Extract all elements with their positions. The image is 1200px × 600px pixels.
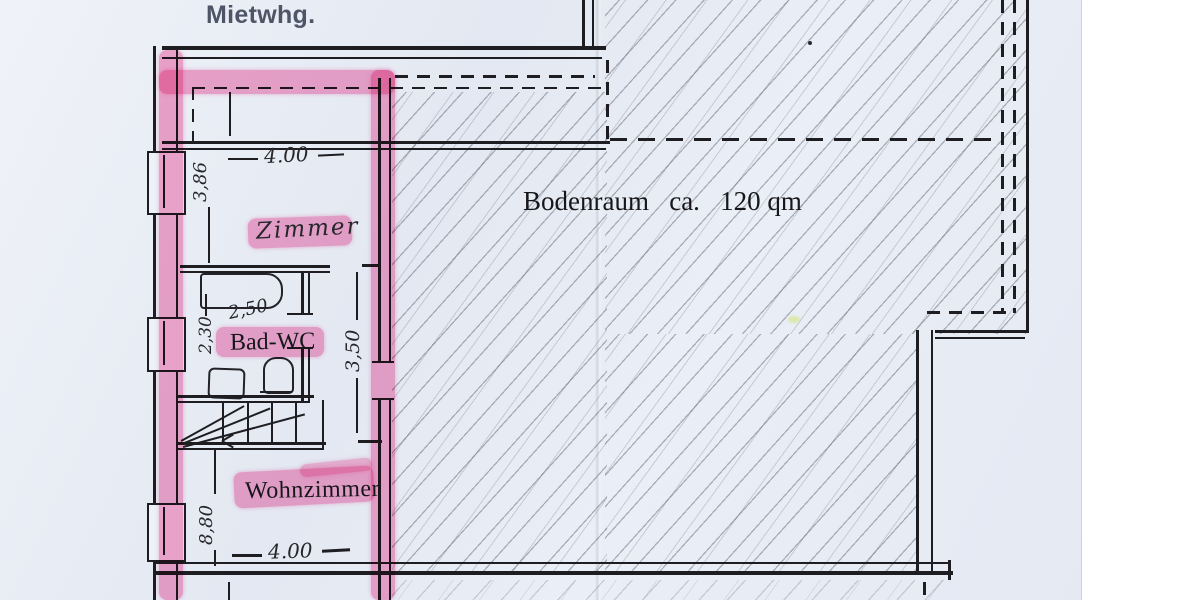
highlight-top-wall [159, 70, 395, 94]
dimension-line [356, 378, 358, 433]
dashed-line [923, 582, 926, 600]
dashed-line [1001, 0, 1004, 313]
stair-edge [178, 448, 324, 450]
door-jamb [287, 313, 313, 315]
wall [301, 273, 304, 315]
wall-tick [229, 92, 231, 136]
wall [592, 0, 594, 48]
dimension-line [214, 550, 216, 566]
dimension-tick [228, 158, 258, 160]
wall [178, 395, 314, 398]
dimension-line [208, 207, 210, 263]
wall [180, 265, 330, 268]
room-label-badwc: Bad-WC [230, 328, 316, 356]
wall [1026, 0, 1029, 333]
dimension-line [214, 448, 216, 494]
dimension-lower-depth: 8,80 [196, 505, 217, 545]
dimension-line [205, 294, 207, 316]
stair-edge [322, 400, 324, 450]
wall [162, 57, 602, 59]
dashed-line [395, 75, 595, 78]
attic-area-label: Bodenraum ca. 120 qm [523, 186, 802, 217]
dashed-line [192, 87, 194, 141]
dashed-line [606, 60, 609, 142]
wall [178, 401, 310, 403]
wall [582, 0, 585, 48]
highlight-left-wall [159, 50, 183, 600]
highlight-right-wall [371, 70, 395, 600]
wall [948, 560, 951, 580]
wall [155, 571, 953, 575]
wall-tick [228, 582, 230, 600]
ink-speck [808, 41, 812, 45]
dashed-line [927, 311, 1007, 314]
wall [162, 46, 606, 50]
apartment-annotation: Mietwhg. [206, 1, 315, 30]
wall [916, 330, 919, 572]
wall [308, 273, 310, 315]
hatch-area [392, 92, 607, 572]
dimension-bad-depth: 2,30 [196, 316, 216, 354]
hatch-area [392, 580, 950, 600]
stair-tread [247, 403, 249, 443]
dimension-line [356, 272, 358, 320]
scanned-floorplan: Mietwhg. Bodenraum ca. 120 qm Zimmer Bad… [0, 0, 1200, 600]
dimension-zimmer-width: 4.00 [263, 142, 309, 168]
toilet [263, 357, 294, 394]
dashed-line [1013, 0, 1016, 313]
dimension-wohnzimmer-width: 4.00 [268, 538, 313, 564]
hatch-area [605, 334, 918, 572]
wall [935, 337, 1025, 339]
room-label-zimmer: Zimmer [255, 213, 360, 244]
wall [935, 330, 1028, 333]
room-label-wohnzimmer: Wohnzimmer [245, 476, 380, 505]
hatch-area [605, 0, 1028, 334]
wall [931, 330, 933, 572]
stair-tread [295, 403, 297, 443]
dashed-line [610, 138, 1004, 141]
dimension-mid-depth: 3,50 [342, 330, 364, 372]
marker-smudge [788, 316, 800, 323]
dimension-tick [232, 554, 262, 557]
dimension-zimmer-depth: 3,86 [190, 162, 211, 202]
toilet-base [260, 391, 292, 393]
